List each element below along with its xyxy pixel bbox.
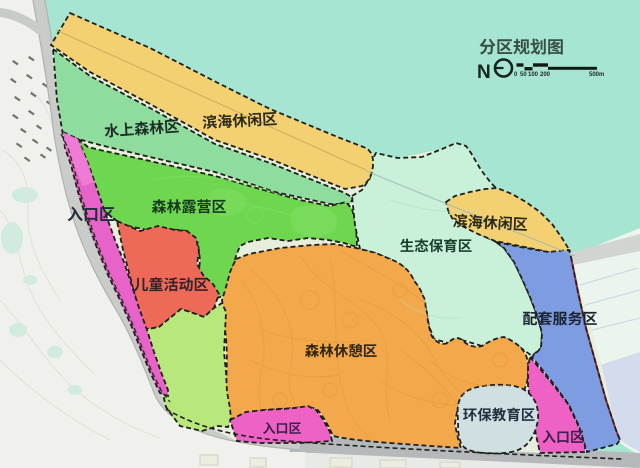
svg-text:200: 200	[540, 72, 551, 78]
svg-text:N: N	[477, 62, 491, 83]
svg-text:100: 100	[528, 72, 539, 78]
svg-text:500m: 500m	[589, 72, 604, 78]
svg-text:50: 50	[520, 72, 527, 78]
